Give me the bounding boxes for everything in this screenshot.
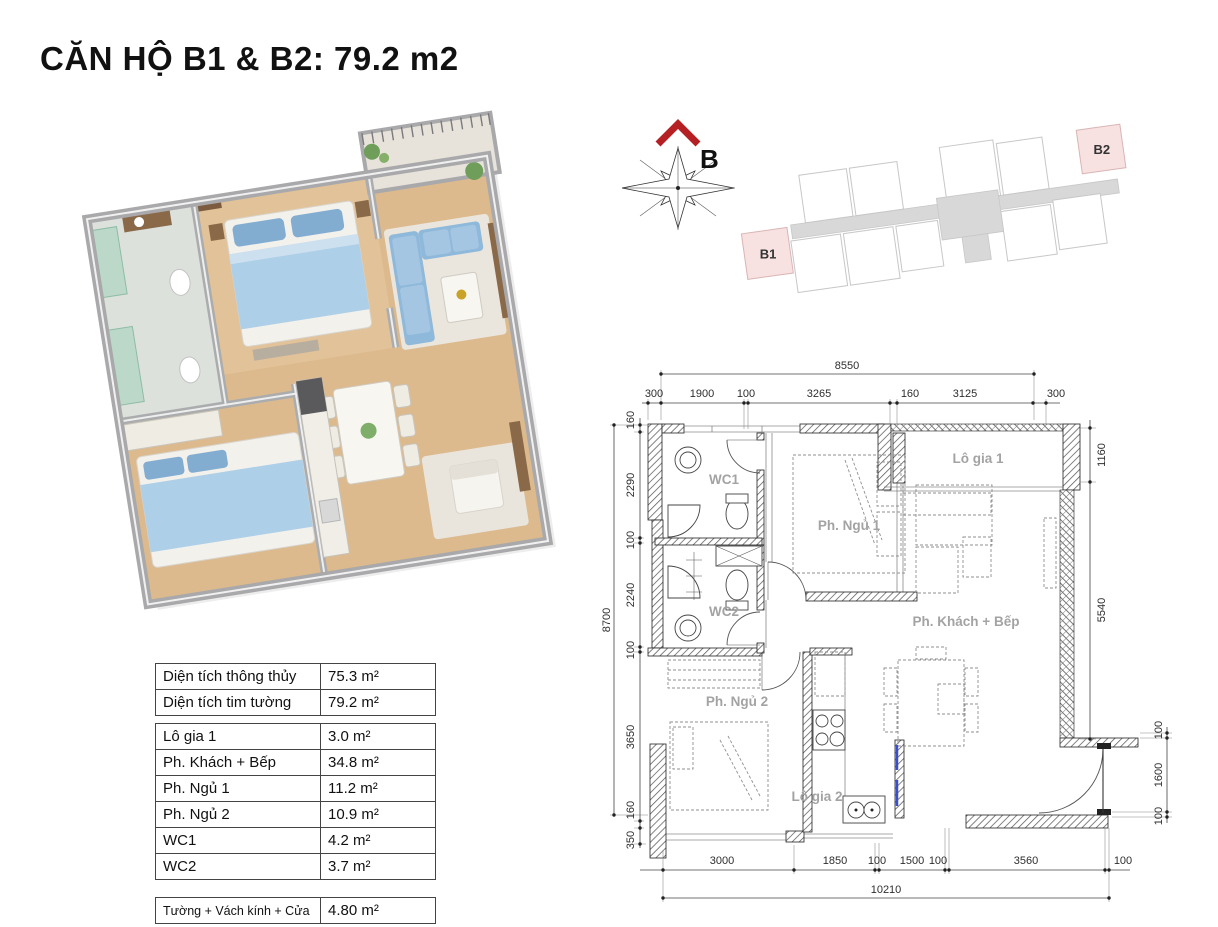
svg-text:1500: 1500 <box>900 855 924 867</box>
svg-text:1600: 1600 <box>1153 763 1165 787</box>
plan-furniture <box>668 455 1056 810</box>
room-label-cell: Ph. Ngủ 1 <box>156 776 321 802</box>
area-value-cell: 3.0 m² <box>321 724 436 750</box>
svg-text:2290: 2290 <box>625 473 637 497</box>
room-label-cell: Ph. Ngủ 2 <box>156 802 321 828</box>
table-row: Lô gia 13.0 m² <box>156 724 436 750</box>
area-value-cell: 75.3 m² <box>321 664 436 690</box>
table-row: Ph. Ngủ 210.9 m² <box>156 802 436 828</box>
area-value-cell: 4.80 m² <box>321 898 436 924</box>
svg-text:3000: 3000 <box>710 855 734 867</box>
area-value-cell: 3.7 m² <box>321 854 436 880</box>
svg-text:100: 100 <box>625 641 637 659</box>
room-label-balcony2: Lô gia 2 <box>791 789 842 804</box>
room-label-balcony1: Lô gia 1 <box>952 451 1003 466</box>
svg-text:5540: 5540 <box>1096 598 1108 622</box>
room-label-cell: Diện tích thông thủy <box>156 664 321 690</box>
room-label-cell: Tường + Vách kính + Cửa <box>156 898 321 924</box>
room-label-bedroom2: Ph. Ngủ 2 <box>706 694 768 709</box>
compass-rose: B <box>622 124 735 230</box>
plan-room-labels: WC1 WC2 Ph. Ngủ 1 Lô gia 1 Ph. Khách + B… <box>706 451 1020 804</box>
room-label-cell: WC2 <box>156 854 321 880</box>
area-value-cell: 10.9 m² <box>321 802 436 828</box>
room-label-cell: Ph. Khách + Bếp <box>156 750 321 776</box>
svg-text:160: 160 <box>625 801 637 819</box>
floorplan-3d-render <box>80 113 559 612</box>
svg-text:350: 350 <box>625 831 637 849</box>
table-row: Ph. Ngủ 111.2 m² <box>156 776 436 802</box>
site-unit-b2-label: B2 <box>1093 142 1110 157</box>
table-row: WC14.2 m² <box>156 828 436 854</box>
table-row: Diện tích thông thủy75.3 m² <box>156 664 436 690</box>
site-unit-b1-label: B1 <box>760 246 777 261</box>
svg-text:160: 160 <box>625 411 637 429</box>
svg-text:100: 100 <box>868 855 886 867</box>
table-row: Diện tích tim tường79.2 m² <box>156 690 436 716</box>
svg-text:100: 100 <box>1153 721 1165 739</box>
plan-fixtures <box>668 447 885 823</box>
svg-text:100: 100 <box>929 855 947 867</box>
north-arrow-icon <box>658 124 698 144</box>
area-value-cell: 79.2 m² <box>321 690 436 716</box>
area-table: Diện tích thông thủy75.3 m² Diện tích ti… <box>155 663 436 924</box>
svg-text:1850: 1850 <box>823 855 847 867</box>
table-row: WC23.7 m² <box>156 854 436 880</box>
room-label-bedroom1: Ph. Ngủ 1 <box>818 518 881 533</box>
floorplan-sheet: CĂN HỘ B1 & B2: 79.2 m2 <box>0 0 1218 927</box>
table-row: Ph. Khách + Bếp34.8 m² <box>156 750 436 776</box>
svg-text:300: 300 <box>645 388 663 400</box>
area-value-cell: 4.2 m² <box>321 828 436 854</box>
area-value-cell: 11.2 m² <box>321 776 436 802</box>
svg-text:1160: 1160 <box>1096 443 1108 467</box>
room-label-living: Ph. Khách + Bếp <box>913 614 1020 629</box>
svg-text:1900: 1900 <box>690 388 714 400</box>
svg-text:100: 100 <box>1153 807 1165 825</box>
technical-floor-plan: WC1 WC2 Ph. Ngủ 1 Lô gia 1 Ph. Khách + B… <box>601 360 1172 902</box>
plan-walls <box>648 424 1138 858</box>
svg-text:3560: 3560 <box>1014 855 1038 867</box>
svg-text:160: 160 <box>901 388 919 400</box>
room-label-cell: WC1 <box>156 828 321 854</box>
area-table-extra: Tường + Vách kính + Cửa4.80 m² <box>155 897 436 924</box>
area-table-rooms: Lô gia 13.0 m² Ph. Khách + Bếp34.8 m² Ph… <box>155 723 436 880</box>
room-label-cell: Lô gia 1 <box>156 724 321 750</box>
site-plan: B1 B2 <box>733 122 1136 299</box>
svg-text:3125: 3125 <box>953 388 977 400</box>
area-table-summary: Diện tích thông thủy75.3 m² Diện tích ti… <box>155 663 436 716</box>
svg-text:2240: 2240 <box>625 583 637 607</box>
room-label-wc1: WC1 <box>709 472 739 487</box>
svg-text:8550: 8550 <box>835 360 859 372</box>
room-label-wc2: WC2 <box>709 604 739 619</box>
svg-text:3265: 3265 <box>807 388 831 400</box>
room-label-cell: Diện tích tim tường <box>156 690 321 716</box>
table-row: Tường + Vách kính + Cửa4.80 m² <box>156 898 436 924</box>
svg-text:10210: 10210 <box>871 884 902 896</box>
svg-text:8700: 8700 <box>601 608 613 632</box>
compass-direction-label: B <box>700 144 719 174</box>
svg-text:100: 100 <box>737 388 755 400</box>
svg-text:300: 300 <box>1047 388 1065 400</box>
svg-text:3650: 3650 <box>625 725 637 749</box>
svg-text:100: 100 <box>1114 855 1132 867</box>
svg-text:100: 100 <box>625 531 637 549</box>
area-value-cell: 34.8 m² <box>321 750 436 776</box>
